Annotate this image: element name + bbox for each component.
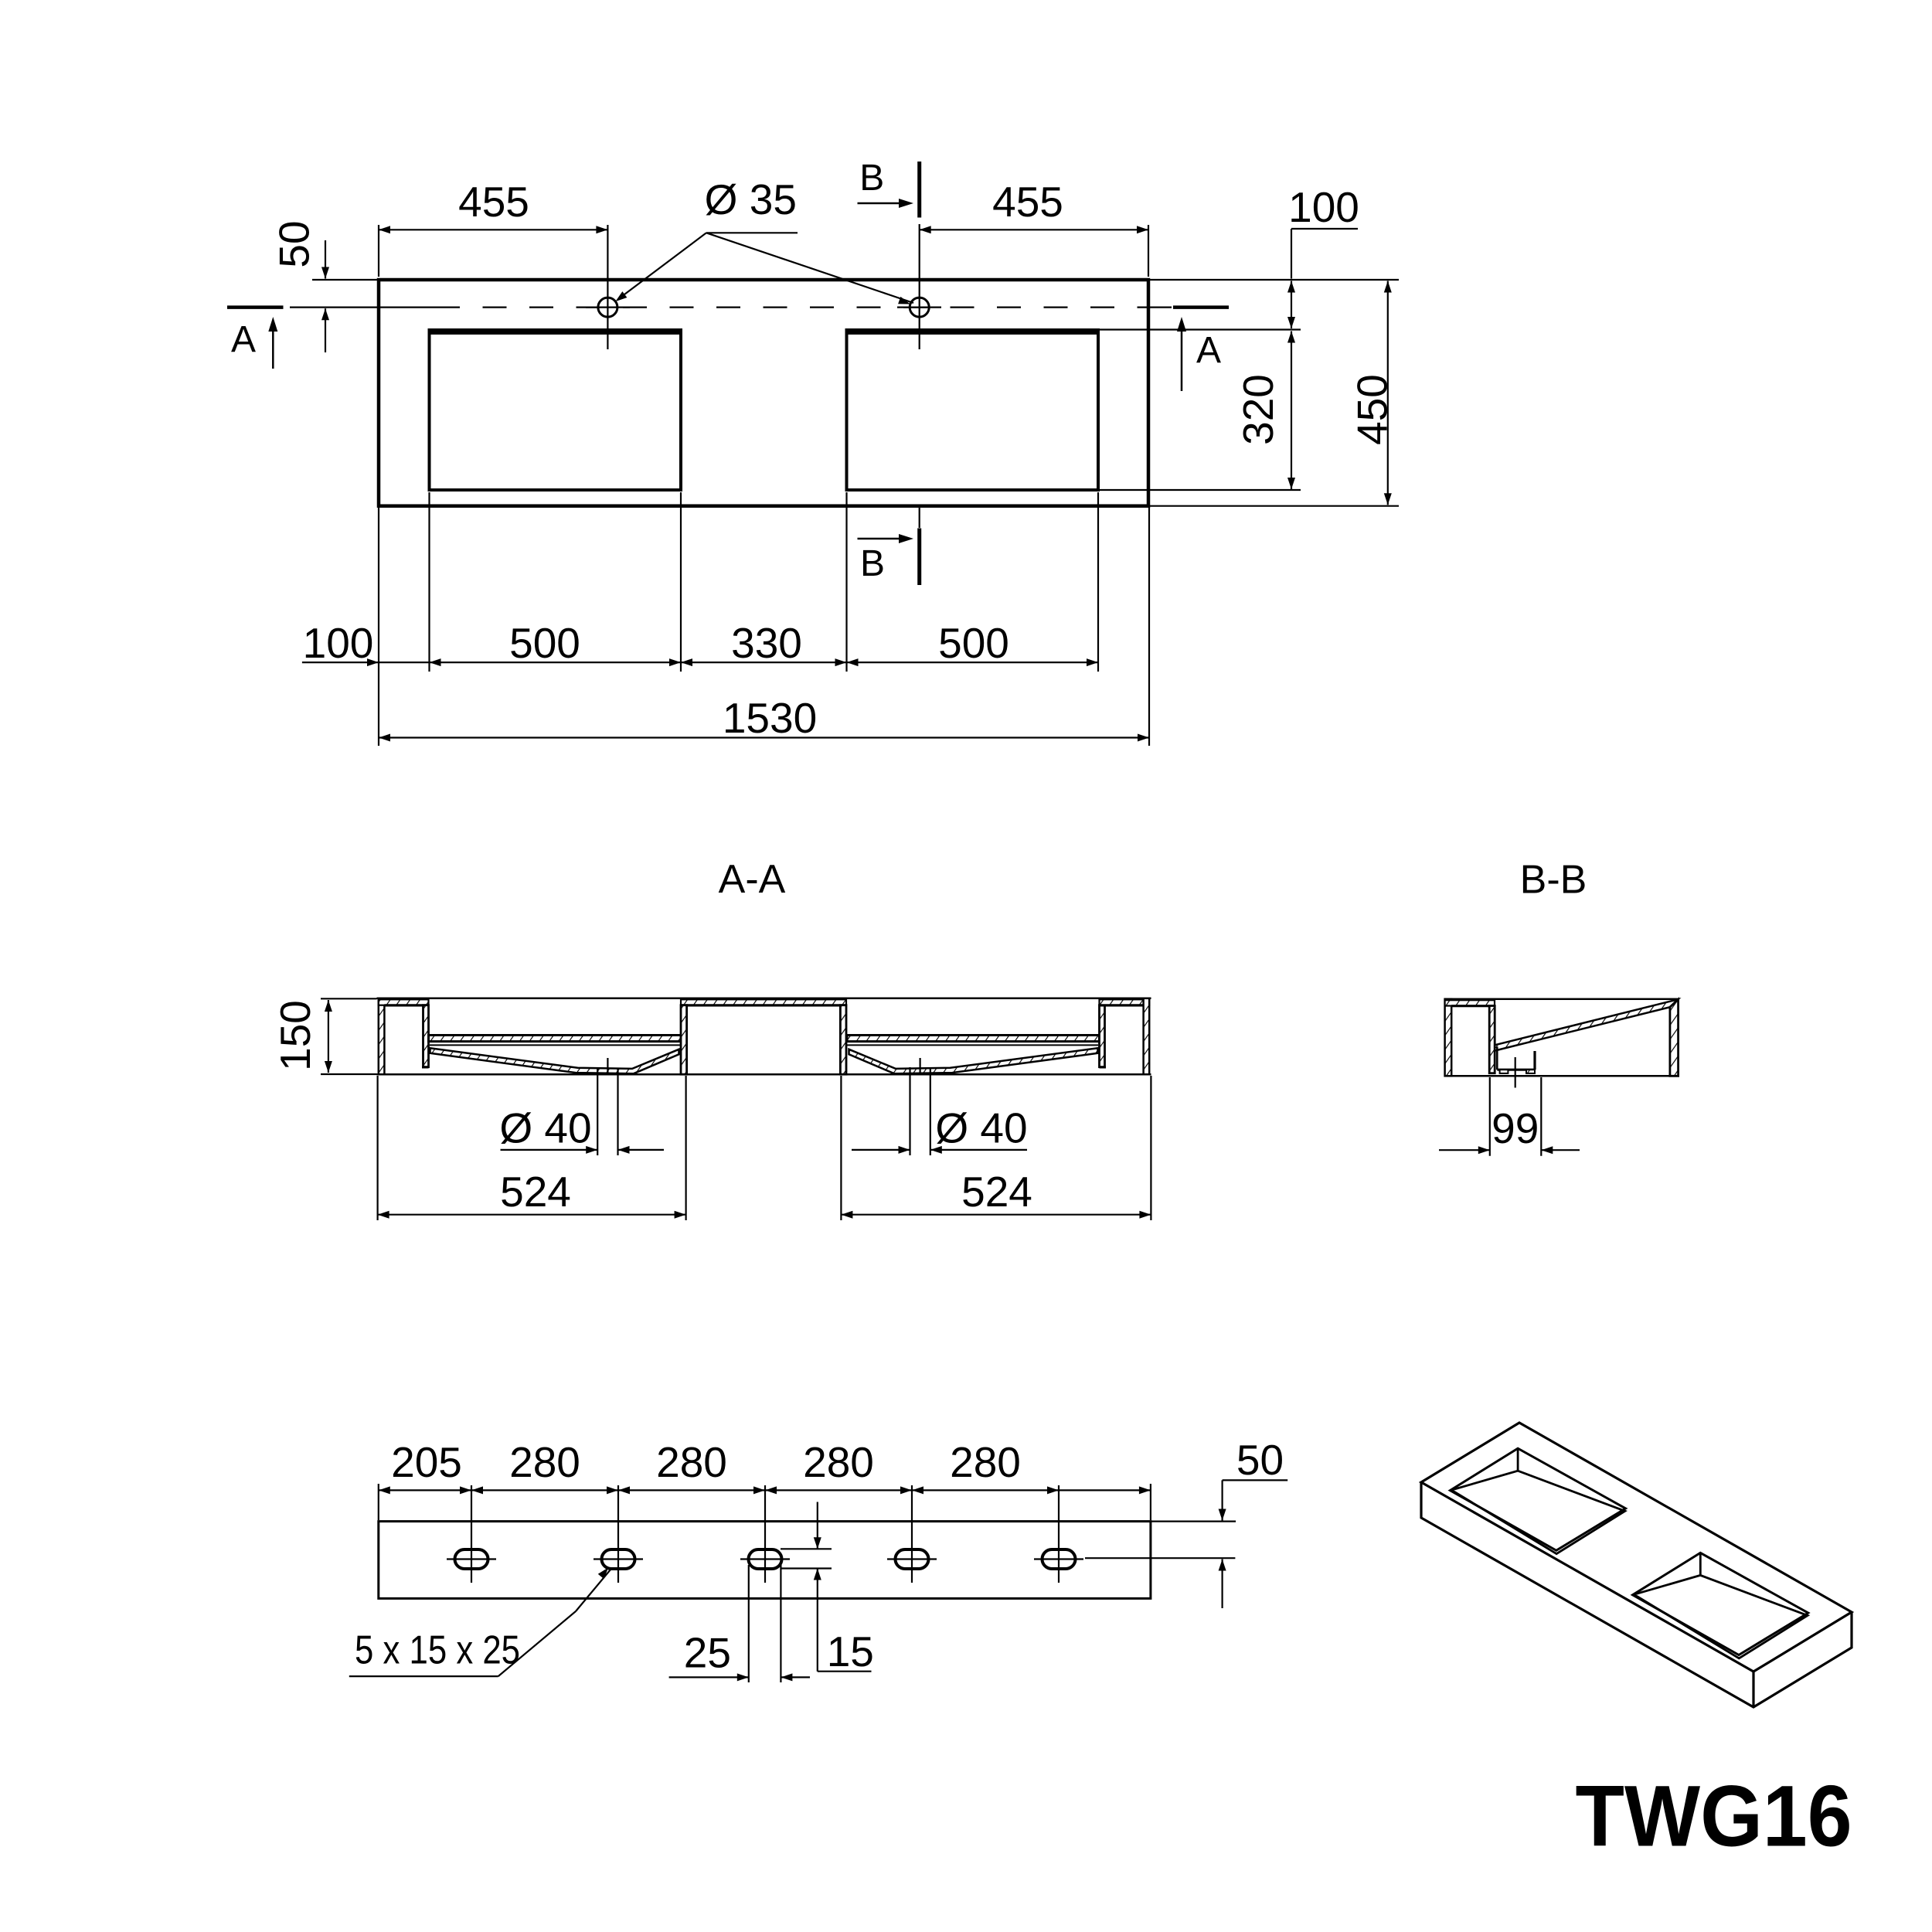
svg-text:A-A: A-A: [719, 857, 786, 902]
svg-text:TWG16: TWG16: [1576, 1767, 1852, 1864]
svg-text:B-B: B-B: [1520, 858, 1587, 903]
svg-text:100: 100: [1288, 183, 1359, 231]
svg-text:524: 524: [961, 1168, 1032, 1216]
svg-text:99: 99: [1492, 1104, 1539, 1152]
svg-text:100: 100: [303, 619, 374, 667]
svg-text:25: 25: [684, 1629, 731, 1677]
svg-text:Ø 35: Ø 35: [705, 175, 797, 223]
svg-text:320: 320: [1234, 374, 1282, 445]
svg-text:15: 15: [827, 1628, 874, 1675]
svg-text:1530: 1530: [723, 694, 817, 742]
svg-text:500: 500: [509, 619, 580, 667]
svg-text:B: B: [860, 543, 885, 584]
svg-text:455: 455: [458, 178, 529, 226]
svg-text:A: A: [231, 319, 256, 360]
svg-text:50: 50: [270, 220, 318, 267]
svg-text:450: 450: [1349, 374, 1396, 445]
svg-text:330: 330: [731, 619, 802, 667]
svg-text:500: 500: [938, 619, 1009, 667]
svg-text:A: A: [1196, 330, 1221, 371]
svg-text:50: 50: [1236, 1436, 1284, 1484]
svg-text:280: 280: [656, 1438, 727, 1486]
svg-text:524: 524: [500, 1168, 571, 1216]
svg-text:Ø 40: Ø 40: [499, 1104, 591, 1152]
svg-text:5 x 15 x 25: 5 x 15 x 25: [355, 1628, 520, 1673]
svg-text:150: 150: [271, 1000, 319, 1071]
svg-text:205: 205: [391, 1438, 462, 1486]
svg-text:280: 280: [509, 1438, 580, 1486]
svg-text:280: 280: [803, 1438, 874, 1486]
svg-text:280: 280: [950, 1438, 1021, 1486]
svg-text:455: 455: [992, 178, 1063, 226]
svg-text:B: B: [859, 158, 884, 199]
svg-text:Ø 40: Ø 40: [935, 1104, 1027, 1152]
